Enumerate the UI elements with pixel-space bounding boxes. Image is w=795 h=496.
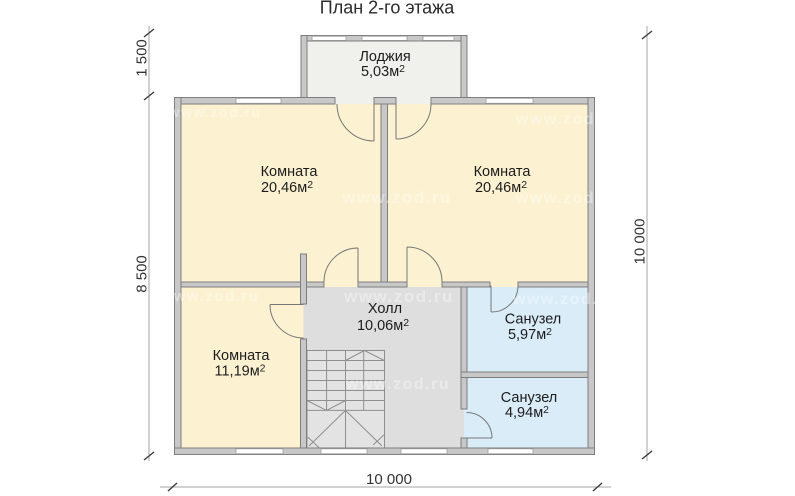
svg-text:4,94м2: 4,94м2 (505, 404, 549, 421)
svg-text:www.zod.ru: www.zod.ru (343, 287, 454, 306)
svg-text:www.zod.ru: www.zod.ru (515, 111, 620, 128)
svg-text:www.zod.ru: www.zod.ru (512, 291, 617, 308)
svg-text:5,97м2: 5,97м2 (508, 326, 552, 343)
svg-text:Санузел: Санузел (505, 312, 562, 328)
svg-text:20,46м2: 20,46м2 (261, 179, 313, 196)
svg-text:План 2-го этажа: План 2-го этажа (320, 0, 455, 18)
svg-text:www.zod.ru: www.zod.ru (167, 104, 261, 120)
svg-text:11,19м2: 11,19м2 (214, 363, 265, 380)
svg-text:5,03м2: 5,03м2 (361, 63, 405, 80)
svg-text:Комната: Комната (261, 164, 319, 180)
svg-text:10 000: 10 000 (366, 471, 412, 488)
svg-text:www.zod.ru: www.zod.ru (160, 288, 260, 305)
svg-text:www.zod.ru: www.zod.ru (345, 376, 450, 393)
svg-text:www.zod.ru: www.zod.ru (341, 188, 452, 207)
svg-text:1 500: 1 500 (134, 39, 151, 77)
svg-text:10,06м2: 10,06м2 (357, 317, 409, 334)
svg-text:8 500: 8 500 (134, 255, 151, 293)
svg-text:10 000: 10 000 (632, 219, 649, 265)
svg-text:Комната: Комната (474, 164, 532, 180)
svg-text:www.zod.ru: www.zod.ru (515, 190, 620, 207)
